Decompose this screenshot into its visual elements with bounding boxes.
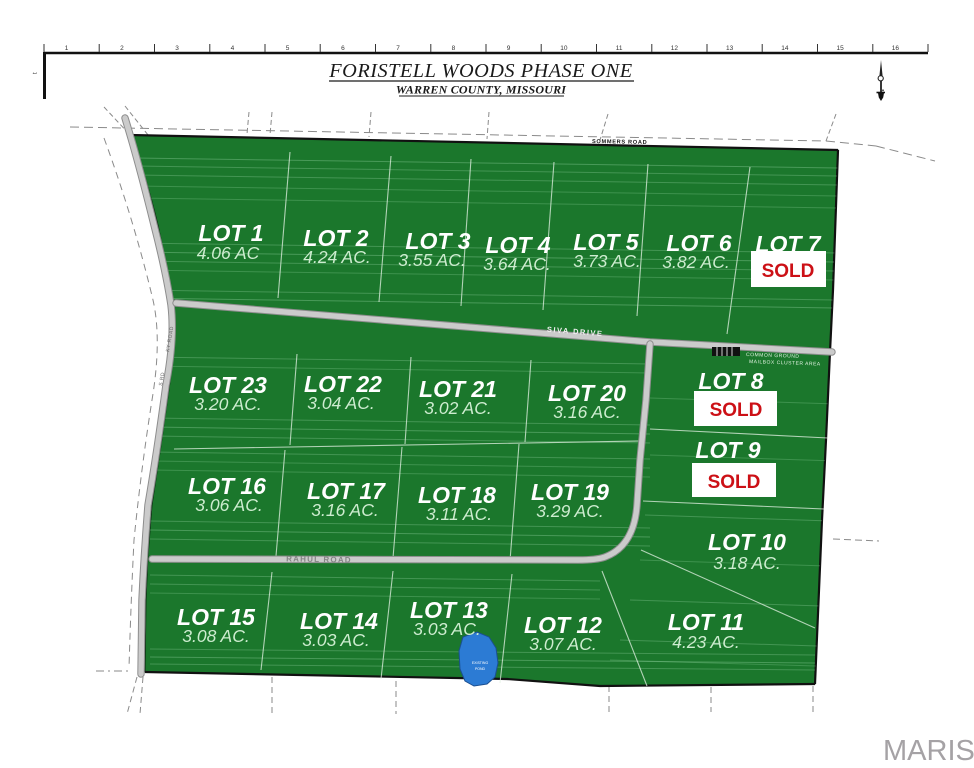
- svg-text:3.07 AC.: 3.07 AC.: [529, 634, 596, 654]
- svg-text:MARIS: MARIS: [883, 735, 974, 767]
- svg-text:WARREN COUNTY, MISSOURI: WARREN COUNTY, MISSOURI: [396, 83, 567, 97]
- svg-text:6: 6: [341, 45, 345, 52]
- svg-text:15: 15: [836, 45, 844, 52]
- svg-text:3: 3: [175, 45, 179, 52]
- svg-text:11: 11: [616, 45, 623, 52]
- svg-text:SOLD: SOLD: [710, 400, 763, 421]
- svg-text:FORISTELL WOODS PHASE ONE: FORISTELL WOODS PHASE ONE: [328, 60, 632, 82]
- svg-text:3.06 AC.: 3.06 AC.: [195, 495, 262, 515]
- svg-text:2: 2: [120, 45, 124, 52]
- svg-text:3.08 AC.: 3.08 AC.: [182, 626, 249, 646]
- svg-text:3.64 AC.: 3.64 AC.: [483, 254, 550, 274]
- svg-text:3.29 AC.: 3.29 AC.: [536, 501, 603, 521]
- svg-text:4.24 AC.: 4.24 AC.: [303, 247, 370, 267]
- svg-text:3.55 AC.: 3.55 AC.: [398, 250, 465, 270]
- svg-text:3.04 AC.: 3.04 AC.: [307, 393, 374, 413]
- svg-text:3.03 AC.: 3.03 AC.: [413, 619, 480, 639]
- svg-text:3.18 AC.: 3.18 AC.: [713, 553, 780, 573]
- svg-text:SOLD: SOLD: [708, 472, 761, 493]
- svg-text:12: 12: [671, 45, 679, 52]
- svg-text:1: 1: [65, 45, 69, 52]
- svg-text:LOT 8: LOT 8: [698, 368, 763, 394]
- svg-text:9: 9: [507, 45, 511, 52]
- svg-text:3.02 AC.: 3.02 AC.: [424, 398, 491, 418]
- svg-text:13: 13: [726, 45, 734, 52]
- svg-text:POND: POND: [475, 667, 486, 671]
- svg-text:3.82 AC.: 3.82 AC.: [662, 252, 729, 272]
- svg-text:16: 16: [892, 45, 900, 52]
- svg-text:4.23 AC.: 4.23 AC.: [672, 632, 739, 652]
- svg-text:3.73 AC.: 3.73 AC.: [573, 251, 640, 271]
- svg-text:14: 14: [781, 45, 789, 52]
- svg-text:RAHUL ROAD: RAHUL ROAD: [286, 554, 352, 564]
- svg-text:3.11 AC.: 3.11 AC.: [426, 504, 492, 524]
- svg-text:3.03 AC.: 3.03 AC.: [302, 630, 369, 650]
- svg-text:LOT 9: LOT 9: [695, 437, 760, 463]
- svg-text:7: 7: [396, 45, 400, 52]
- svg-text:3.16 AC.: 3.16 AC.: [311, 500, 378, 520]
- svg-text:3.20 AC.: 3.20 AC.: [194, 394, 261, 414]
- svg-text:LOT 10: LOT 10: [708, 529, 786, 555]
- svg-text:SOLD: SOLD: [762, 261, 815, 282]
- svg-text:10: 10: [560, 45, 568, 52]
- svg-text:5: 5: [286, 45, 290, 52]
- svg-text:3.16 AC.: 3.16 AC.: [553, 402, 620, 422]
- svg-text:8: 8: [452, 45, 456, 52]
- svg-text:4.06 AC: 4.06 AC: [197, 243, 260, 263]
- svg-text:EXISTING: EXISTING: [472, 661, 489, 665]
- svg-text:4: 4: [231, 45, 235, 52]
